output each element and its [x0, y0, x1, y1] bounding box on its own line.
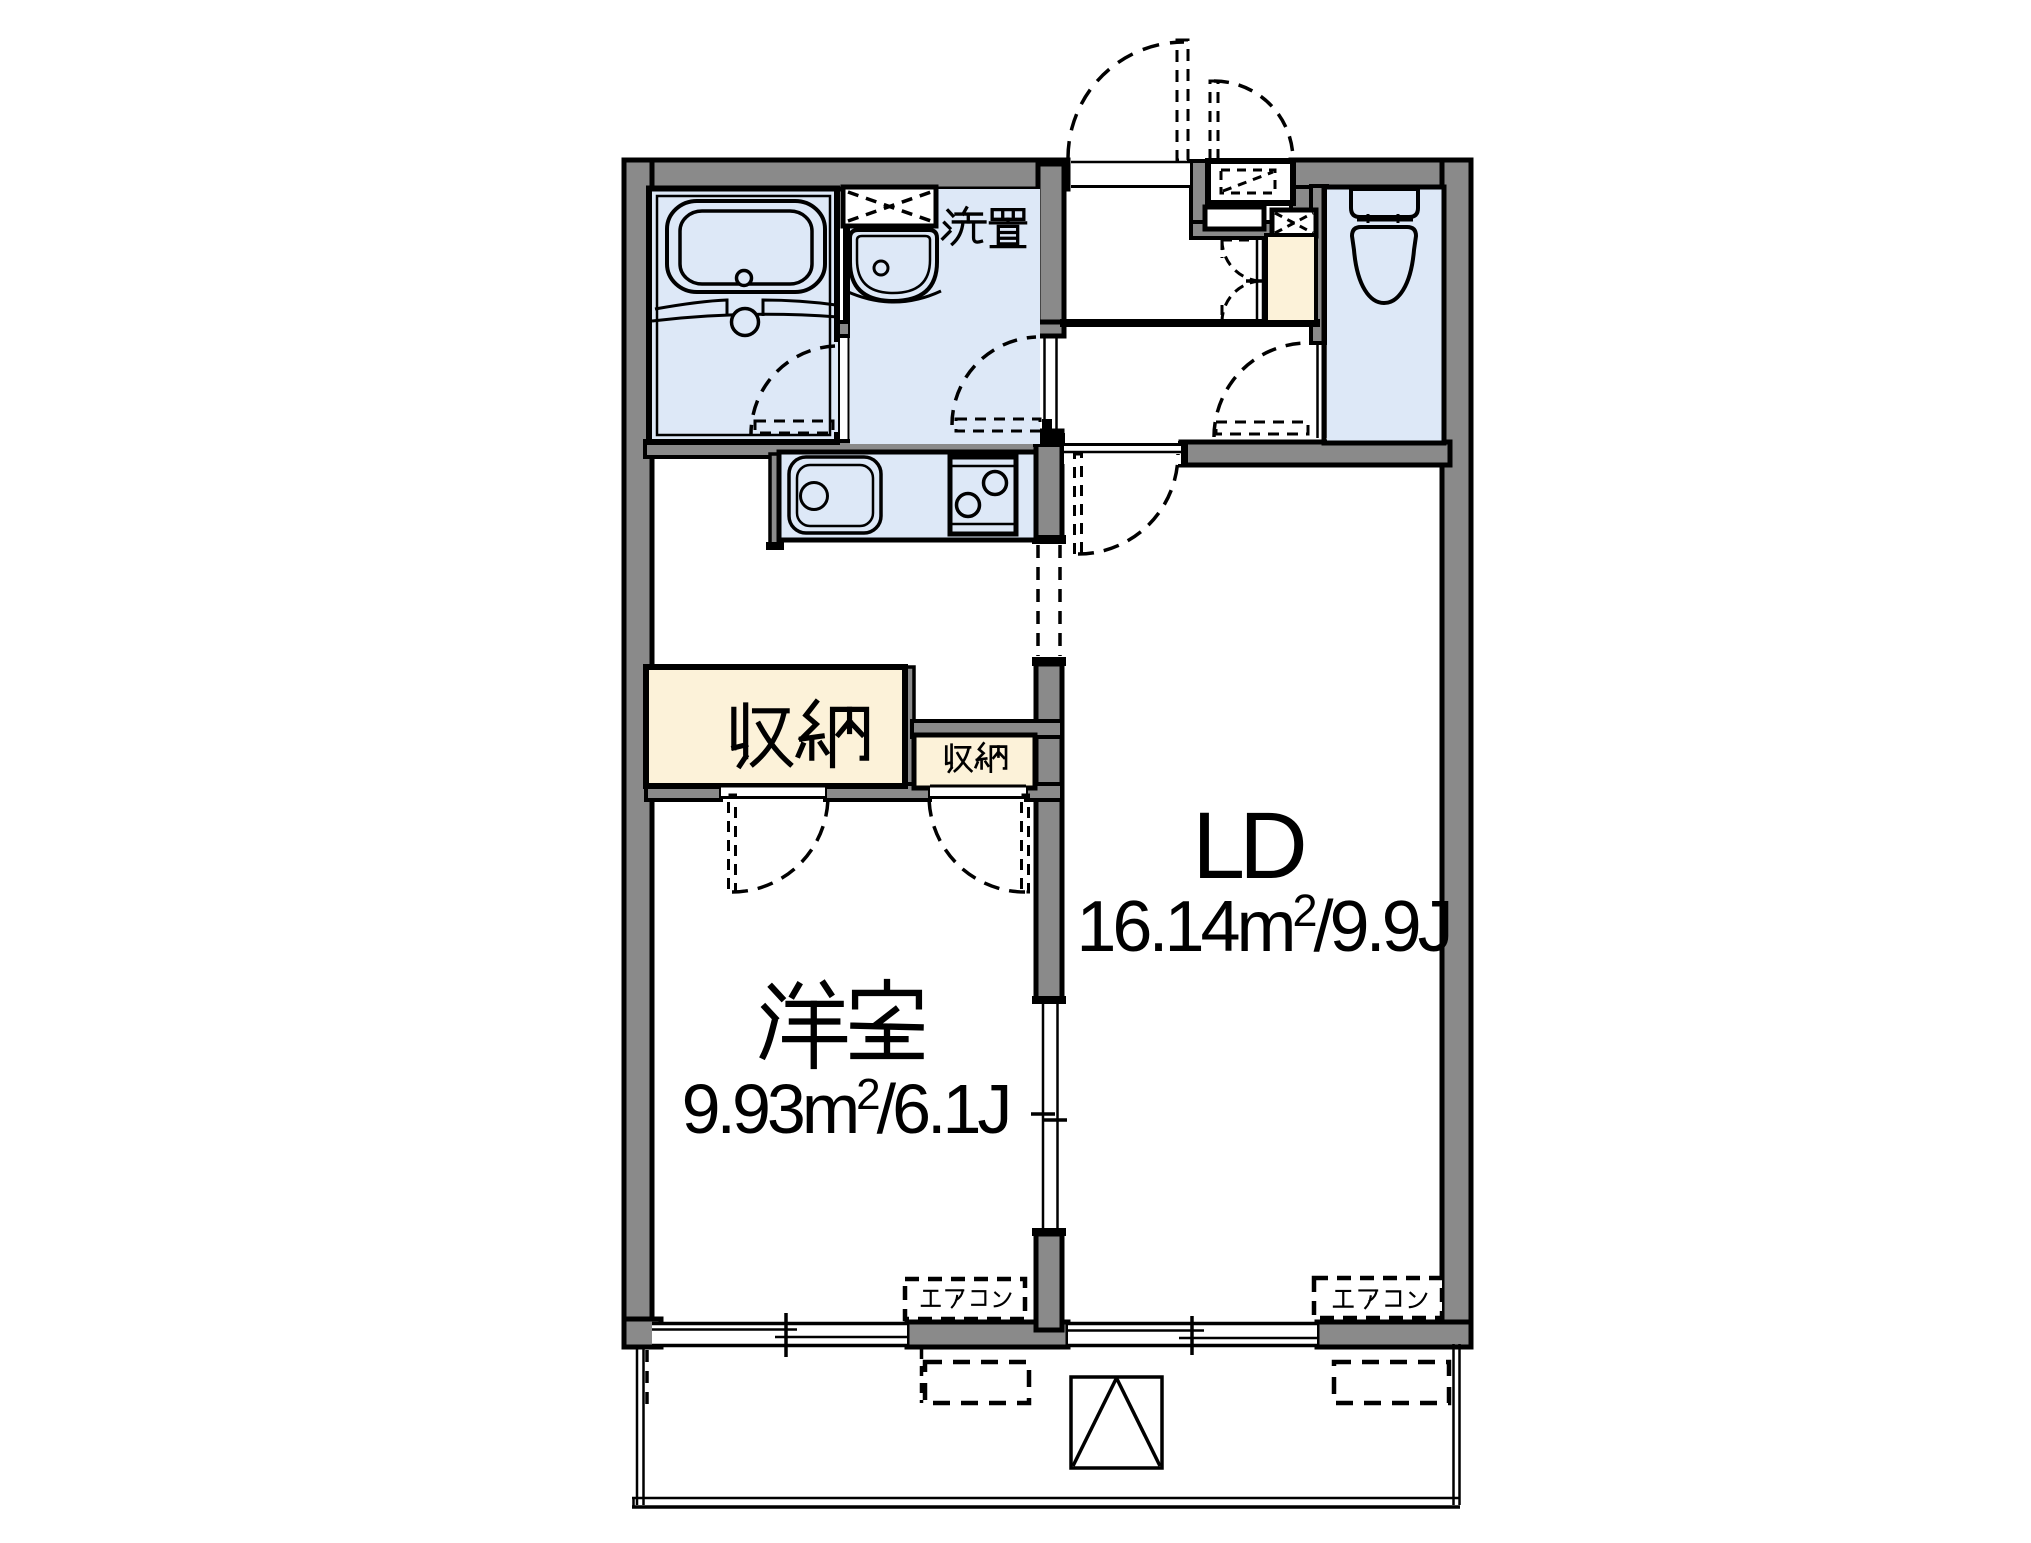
- svg-text:LD: LD: [1192, 793, 1304, 899]
- svg-text:16.14m2/9.9J: 16.14m2/9.9J: [1076, 885, 1449, 967]
- svg-text:9.93m2/6.1J: 9.93m2/6.1J: [682, 1070, 1009, 1148]
